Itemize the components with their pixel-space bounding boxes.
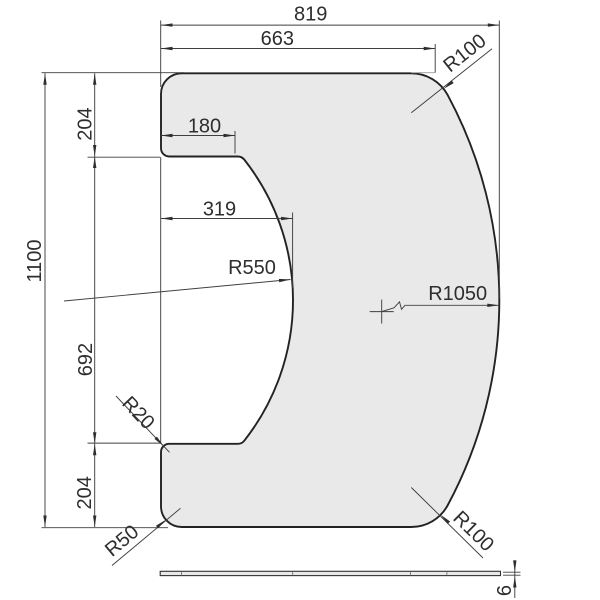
svg-text:R20: R20 [117, 392, 158, 434]
svg-text:1100: 1100 [24, 239, 46, 282]
svg-text:204: 204 [74, 476, 96, 509]
svg-text:204: 204 [75, 107, 97, 140]
svg-text:6: 6 [494, 585, 516, 596]
svg-text:692: 692 [75, 343, 97, 376]
svg-text:319: 319 [203, 199, 236, 221]
svg-text:R50: R50 [101, 521, 143, 561]
svg-text:819: 819 [294, 4, 327, 26]
svg-text:R1050: R1050 [428, 283, 487, 305]
svg-text:R550: R550 [228, 257, 276, 279]
svg-text:180: 180 [188, 116, 221, 138]
svg-text:663: 663 [261, 28, 294, 50]
